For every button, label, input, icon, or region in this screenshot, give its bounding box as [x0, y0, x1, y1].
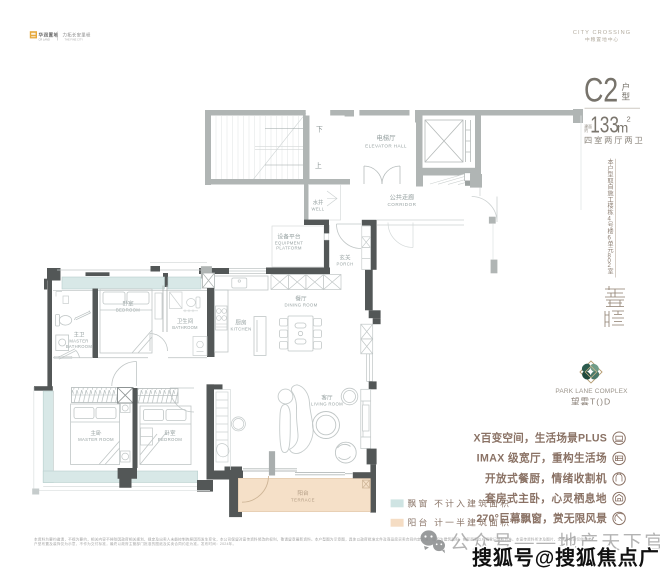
svg-text:阳台: 阳台 [297, 489, 309, 497]
svg-text:电梯厅: 电梯厅 [376, 133, 396, 142]
svg-text:MASTER: MASTER [69, 339, 88, 344]
svg-text:水井: 水井 [313, 199, 324, 207]
svg-text:PORCH: PORCH [336, 262, 353, 267]
svg-text:主卫: 主卫 [74, 331, 85, 339]
svg-text:型: 型 [622, 91, 631, 101]
svg-text:133: 133 [590, 112, 619, 138]
svg-text:搜狐号@搜狐焦点广安站: 搜狐号@搜狐焦点广安站 [472, 546, 660, 569]
svg-text:约: 约 [584, 128, 588, 133]
svg-text:华润置地: 华润置地 [39, 32, 59, 39]
svg-text:四室两厅两卫: 四室两厅两卫 [584, 135, 645, 145]
svg-text:卧室: 卧室 [164, 429, 176, 437]
svg-text:本户型取自施工楼栋4号楼6单元802室: 本户型取自施工楼栋4号楼6单元802室 [608, 158, 614, 275]
svg-text:设备平台: 设备平台 [277, 233, 300, 241]
svg-text:客厅: 客厅 [321, 394, 333, 402]
svg-text:CORRIDOR: CORRIDOR [387, 202, 416, 207]
svg-text:上: 上 [315, 161, 322, 170]
svg-text:X百变空间，生活场景PLUS: X百变空间，生活场景PLUS [474, 431, 607, 444]
svg-text:PLATFORM: PLATFORM [276, 246, 302, 251]
svg-text:中粮置地中心: 中粮置地中心 [585, 36, 619, 43]
svg-text:WELL: WELL [311, 207, 324, 212]
svg-text:LIVING ROOM: LIVING ROOM [311, 402, 343, 407]
svg-text:ELEVATOR HALL: ELEVATOR HALL [365, 144, 407, 149]
svg-text:THE FINE CITY: THE FINE CITY [65, 37, 84, 41]
svg-text:厨房: 厨房 [235, 319, 247, 327]
svg-text:开放式餐厨，情绪收割机: 开放式餐厨，情绪收割机 [485, 472, 607, 485]
svg-text:户型布置及装饰仅为示意，不作为交付标准，最终以政府主管部门批: 户型布置及装饰仅为示意，不作为交付标准，最终以政府主管部门批准的图纸及买卖合同约… [34, 541, 236, 546]
svg-text:BATHROOM: BATHROOM [66, 344, 92, 349]
svg-text:主卧: 主卧 [90, 429, 102, 437]
svg-text:力拓长安里程: 力拓长安里程 [63, 31, 91, 38]
svg-text:飘窗 不计入建筑面积: 飘窗 不计入建筑面积 [408, 497, 512, 508]
svg-text:2: 2 [627, 115, 631, 124]
svg-text:KITCHEN: KITCHEN [231, 327, 252, 332]
svg-text:MASTER ROOM: MASTER ROOM [78, 437, 114, 442]
svg-text:DINING ROOM: DINING ROOM [285, 303, 318, 308]
svg-text:餐厅: 餐厅 [295, 295, 307, 303]
svg-text:PARK LANE COMPLEX: PARK LANE COMPLEX [555, 388, 628, 395]
svg-text:卫生间: 卫生间 [177, 317, 193, 325]
svg-text:IMAX 级宽厅，重构生活场: IMAX 级宽厅，重构生活场 [477, 452, 607, 465]
svg-text:玄关: 玄关 [339, 254, 351, 262]
svg-text:公共走廊: 公共走廊 [390, 194, 415, 202]
svg-text:户: 户 [622, 81, 631, 92]
svg-text:阳台 计一半建筑面积: 阳台 计一半建筑面积 [408, 517, 512, 528]
svg-text:BATHROOM: BATHROOM [172, 325, 198, 330]
svg-text:下: 下 [316, 126, 323, 134]
svg-text:CITY CROSSING: CITY CROSSING [573, 30, 631, 36]
svg-text:CR LAND: CR LAND [39, 38, 51, 42]
svg-text:C2: C2 [584, 72, 618, 110]
svg-text:TERRACE: TERRACE [291, 498, 315, 503]
svg-text:望雲T()D: 望雲T()D [571, 396, 611, 407]
